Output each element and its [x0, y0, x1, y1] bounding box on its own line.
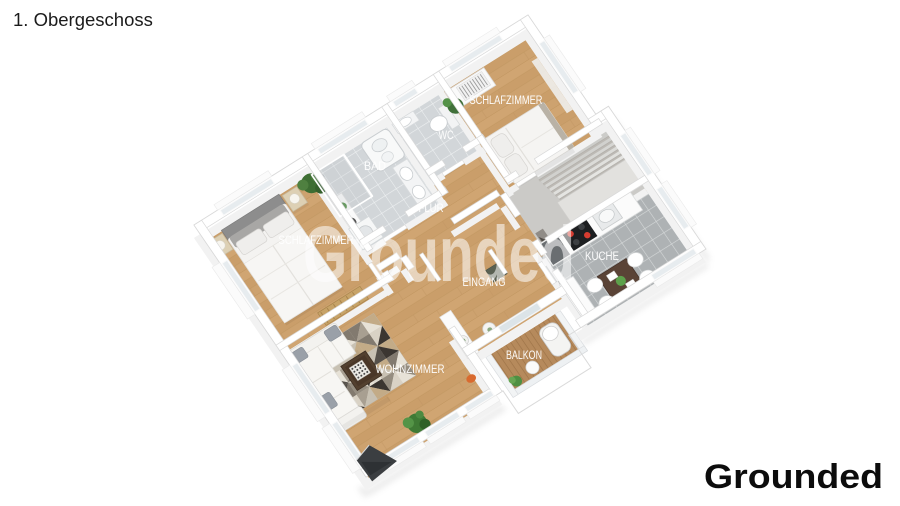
svg-text:KÜCHE: KÜCHE: [585, 251, 619, 263]
svg-text:EINGANG: EINGANG: [463, 277, 506, 289]
svg-text:Grounded: Grounded: [303, 209, 575, 298]
svg-text:Grounded: Grounded: [704, 458, 883, 496]
svg-text:1. Obergeschoss: 1. Obergeschoss: [13, 9, 153, 30]
svg-text:SCHLAFZIMMER: SCHLAFZIMMER: [470, 95, 543, 107]
svg-text:FLUR: FLUR: [419, 203, 444, 215]
svg-text:BALKON: BALKON: [506, 350, 542, 362]
svg-text:WC: WC: [439, 130, 454, 142]
svg-text:SCHLAFZIMMER: SCHLAFZIMMER: [279, 235, 354, 247]
svg-text:BAD: BAD: [364, 161, 386, 173]
svg-text:WOHNZIMMER: WOHNZIMMER: [376, 364, 445, 376]
